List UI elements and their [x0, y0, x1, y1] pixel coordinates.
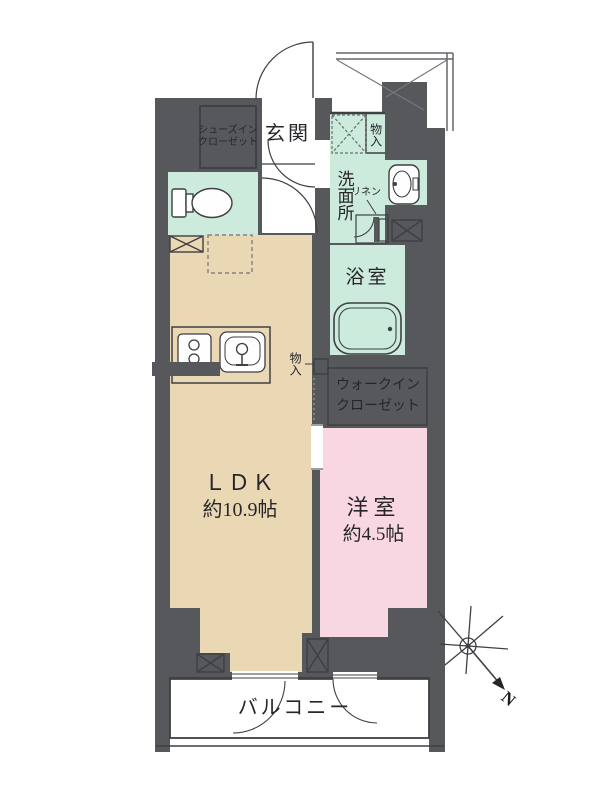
ldk-size-label: 約10.9帖 [168, 499, 312, 523]
floor-plan-drawing: N [0, 0, 600, 800]
western-room-name-label: 洋室 [320, 495, 427, 521]
genkan-label: 玄関 [260, 121, 316, 149]
floor-plan: N 玄関 シューズイン クローゼット 洗面所 物入 リネン 浴室 ＬＤＫ 約10… [0, 0, 600, 800]
outside-notch-top [332, 96, 382, 112]
walk-in-closet-label: ウォークイン クローゼット [329, 372, 427, 420]
compass-north-label: N [498, 688, 520, 711]
balcony-label: バルコニー [205, 695, 385, 723]
genkan-floor [262, 98, 315, 233]
outside-notch-right [427, 94, 446, 128]
toilet-fixture [172, 189, 232, 218]
compass: N [438, 606, 520, 710]
kitchen-sink [220, 332, 265, 372]
storage-mid-label: 物入 [286, 346, 304, 382]
storage-top-label: 物入 [366, 114, 385, 156]
washroom-door-opening [315, 140, 330, 188]
western-room-doorway [311, 424, 323, 470]
bathroom-floor [330, 245, 405, 355]
linen-label: リネン [352, 186, 380, 199]
ldk-name-label: ＬＤＫ [168, 469, 312, 497]
western-room-size-label: 約4.5帖 [320, 524, 427, 546]
balcony-wall-right [429, 678, 445, 752]
shoes-in-closet-line2: クローゼット [198, 137, 258, 149]
walk-in-closet-line2: クローゼット [336, 396, 420, 417]
bathroom-label: 浴室 [331, 266, 404, 290]
walk-in-closet-line1: ウォークイン [336, 375, 420, 396]
balcony-window-western [333, 672, 377, 680]
kitchen-partition-wall [152, 362, 220, 376]
compass-arrowhead [492, 677, 505, 690]
ldk-floor [170, 235, 312, 672]
balcony-wall-left [155, 678, 170, 752]
shoes-in-closet-label: シューズイン クローゼット [201, 112, 255, 162]
washbasin [389, 165, 419, 204]
shoes-in-closet-line1: シューズイン [198, 125, 258, 137]
balcony-window-ldk [232, 671, 298, 680]
entrance-door [256, 42, 313, 99]
